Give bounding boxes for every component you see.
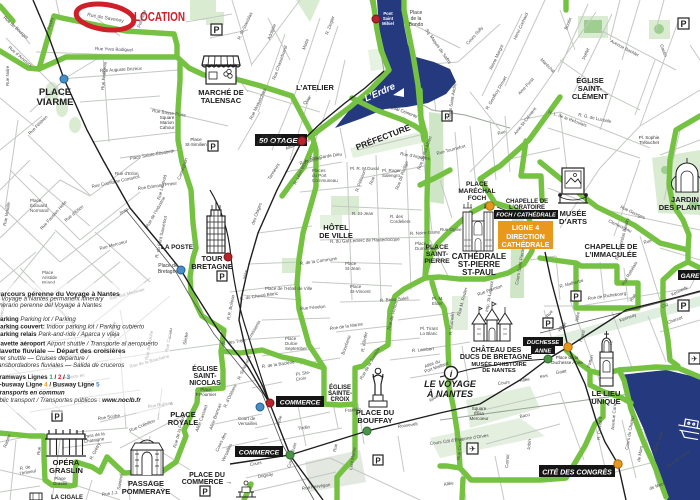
svg-text:FOCH: FOCH bbox=[468, 195, 487, 202]
svg-text:Duchesse Anne: Duchesse Anne bbox=[551, 360, 583, 365]
svg-text:Trébuchet: Trébuchet bbox=[639, 140, 660, 145]
svg-text:LIGNE 4: LIGNE 4 bbox=[512, 225, 539, 232]
svg-text:Dumoustier: Dumoustier bbox=[415, 246, 439, 251]
svg-text:CLÉMENT: CLÉMENT bbox=[572, 92, 609, 101]
svg-text:VIARME: VIARME bbox=[37, 97, 74, 108]
svg-text:P: P bbox=[202, 487, 208, 496]
svg-text:P: P bbox=[210, 142, 216, 151]
svg-text:Tramways Lignes 1 / 2 / 3: Tramways Lignes 1 / 2 / 3 bbox=[0, 374, 71, 381]
svg-text:St-Similien: St-Similien bbox=[185, 142, 207, 147]
svg-text:LE VOYAGE: LE VOYAGE bbox=[424, 379, 477, 389]
svg-text:Normand: Normand bbox=[30, 208, 49, 213]
svg-text:Lo Blanc: Lo Blanc bbox=[420, 331, 438, 336]
svg-text:MUSÉE D’HISTOIRE: MUSÉE D’HISTOIRE bbox=[471, 360, 526, 368]
svg-text:BRETAGNE: BRETAGNE bbox=[191, 262, 233, 271]
svg-text:DE NANTES: DE NANTES bbox=[482, 368, 516, 374]
svg-text:Versailles: Versailles bbox=[238, 421, 258, 426]
svg-text:GARE: GARE bbox=[681, 273, 700, 280]
svg-text:ST-PAUL: ST-PAUL bbox=[462, 268, 496, 277]
svg-text:P: P bbox=[573, 292, 579, 301]
svg-text:Bondo: Bondo bbox=[409, 22, 424, 28]
svg-text:September: September bbox=[285, 346, 308, 351]
svg-text:P: P bbox=[545, 319, 551, 328]
svg-text:Communeau: Communeau bbox=[312, 178, 338, 183]
svg-text:R. St-Jean: R. St-Jean bbox=[352, 211, 374, 216]
svg-text:Navette aéroport Airport shutt: Navette aéroport Airport shuttle / Trans… bbox=[0, 341, 158, 348]
svg-text:iver shuttle — Cruises departu: iver shuttle — Cruises departure / bbox=[0, 355, 89, 362]
svg-text:COMMERCE →: COMMERCE → bbox=[182, 479, 233, 486]
svg-text:POMMERAYE: POMMERAYE bbox=[122, 487, 170, 496]
svg-text:Parking Parking lot / Parking: Parking Parking lot / Parking bbox=[0, 316, 76, 323]
svg-text:ÉGLISE: ÉGLISE bbox=[192, 364, 218, 373]
svg-text:CITÉ DES CONGRÈS: CITÉ DES CONGRÈS bbox=[542, 468, 612, 477]
svg-text:Graslin: Graslin bbox=[53, 481, 68, 486]
svg-text:e-busway Ligne 4 / Busway Lign: e-busway Ligne 4 / Busway Ligne 5 bbox=[0, 382, 100, 389]
svg-text:Parking relais Park-and-ride /: Parking relais Park-and-ride / Aparca y … bbox=[0, 331, 120, 338]
svg-text:Mercoeur: Mercoeur bbox=[469, 416, 489, 421]
svg-text:pont Morand: pont Morand bbox=[257, 140, 285, 146]
svg-text:NICOLAS: NICOLAS bbox=[189, 380, 221, 387]
svg-text:ÉGLISE: ÉGLISE bbox=[329, 383, 351, 391]
svg-text:Cahour: Cahour bbox=[160, 125, 175, 130]
svg-text:SAINT-: SAINT- bbox=[194, 373, 218, 380]
svg-text:L’IMMACULÉE: L’IMMACULÉE bbox=[585, 250, 637, 259]
svg-text:Rue Oglée: Rue Oglée bbox=[440, 227, 462, 232]
svg-text:CATHÉDRALE: CATHÉDRALE bbox=[502, 240, 550, 249]
svg-text:R.: R. bbox=[608, 340, 614, 345]
svg-text:ANNE: ANNE bbox=[534, 349, 553, 355]
svg-text:PLACE: PLACE bbox=[466, 181, 489, 188]
svg-text:PIERRE: PIERRE bbox=[424, 258, 450, 265]
svg-text:✈: ✈ bbox=[691, 355, 698, 364]
svg-text:COMMERCE: COMMERCE bbox=[280, 400, 321, 407]
svg-text:TALENSAC: TALENSAC bbox=[201, 96, 242, 105]
svg-text:Rue Noire: Rue Noire bbox=[5, 65, 10, 86]
svg-text:ublic transport / Transportes: ublic transport / Transportes públicos :… bbox=[0, 397, 141, 404]
svg-text:Mihiel: Mihiel bbox=[382, 21, 394, 26]
svg-text:DES PLANTES: DES PLANTES bbox=[659, 203, 700, 212]
svg-text:CHÂTEAU DES: CHÂTEAU DES bbox=[471, 345, 522, 354]
svg-text:SAINT-: SAINT- bbox=[426, 251, 448, 258]
svg-text:Elder: Elder bbox=[432, 301, 443, 306]
svg-text:CROIX: CROIX bbox=[330, 397, 349, 403]
svg-text:DUCHESSE: DUCHESSE bbox=[527, 340, 560, 346]
svg-text:tinerario perenne del Voyage à: tinerario perenne del Voyage à Nantes bbox=[0, 302, 102, 309]
svg-text:Transports en commun: Transports en commun bbox=[0, 390, 65, 397]
svg-text:L’ATELIER: L’ATELIER bbox=[296, 83, 334, 92]
svg-text:ransbordadores fluviales — Sal: ransbordadores fluviales — Salida de cru… bbox=[0, 362, 124, 369]
svg-text:PLACE DU: PLACE DU bbox=[189, 472, 225, 479]
svg-text:Bretagne: Bretagne bbox=[158, 269, 179, 275]
svg-text:P: P bbox=[213, 25, 219, 35]
svg-text:Jobin: Jobin bbox=[526, 438, 532, 450]
svg-text:Cordeliers: Cordeliers bbox=[390, 219, 411, 224]
svg-text:✈: ✈ bbox=[469, 445, 476, 454]
svg-text:Rue: Rue bbox=[36, 446, 42, 455]
svg-text:MARÉCHAL: MARÉCHAL bbox=[458, 186, 495, 195]
svg-text:GRASLIN: GRASLIN bbox=[49, 466, 83, 475]
svg-text:P: P bbox=[219, 272, 225, 281]
svg-text:St-Jean: St-Jean bbox=[345, 266, 361, 271]
svg-text:P: P bbox=[680, 301, 686, 311]
svg-text:LA CIGALE: LA CIGALE bbox=[51, 495, 83, 500]
svg-text:Parking couvert: Indoor parkin: Parking couvert: Indoor parking lot / Pa… bbox=[0, 324, 145, 331]
svg-text:P: P bbox=[375, 456, 381, 465]
svg-text:St-Vincent: St-Vincent bbox=[350, 289, 371, 294]
svg-text:DIRECTION: DIRECTION bbox=[506, 234, 545, 241]
svg-text:F.Pournier: F.Pournier bbox=[196, 392, 217, 397]
svg-text:Place de l’Hôtel de Ville: Place de l’Hôtel de Ville bbox=[265, 286, 313, 291]
svg-text:COMMERCE: COMMERCE bbox=[239, 450, 280, 457]
svg-text:LA POSTE: LA POSTE bbox=[161, 244, 194, 251]
svg-text:FOCH / CATHÉDRALE: FOCH / CATHÉDRALE bbox=[496, 211, 556, 219]
svg-text:P: P bbox=[680, 19, 686, 29]
svg-text:Navette fluviale — Départ des: Navette fluviale — Départ des croisières bbox=[0, 348, 126, 355]
svg-text:D’ARTS: D’ARTS bbox=[559, 217, 587, 226]
svg-text:DUCS DE BRETAGNE: DUCS DE BRETAGNE bbox=[460, 354, 533, 361]
svg-text:BOUFFAY: BOUFFAY bbox=[357, 416, 392, 425]
svg-text:P: P bbox=[54, 412, 60, 421]
